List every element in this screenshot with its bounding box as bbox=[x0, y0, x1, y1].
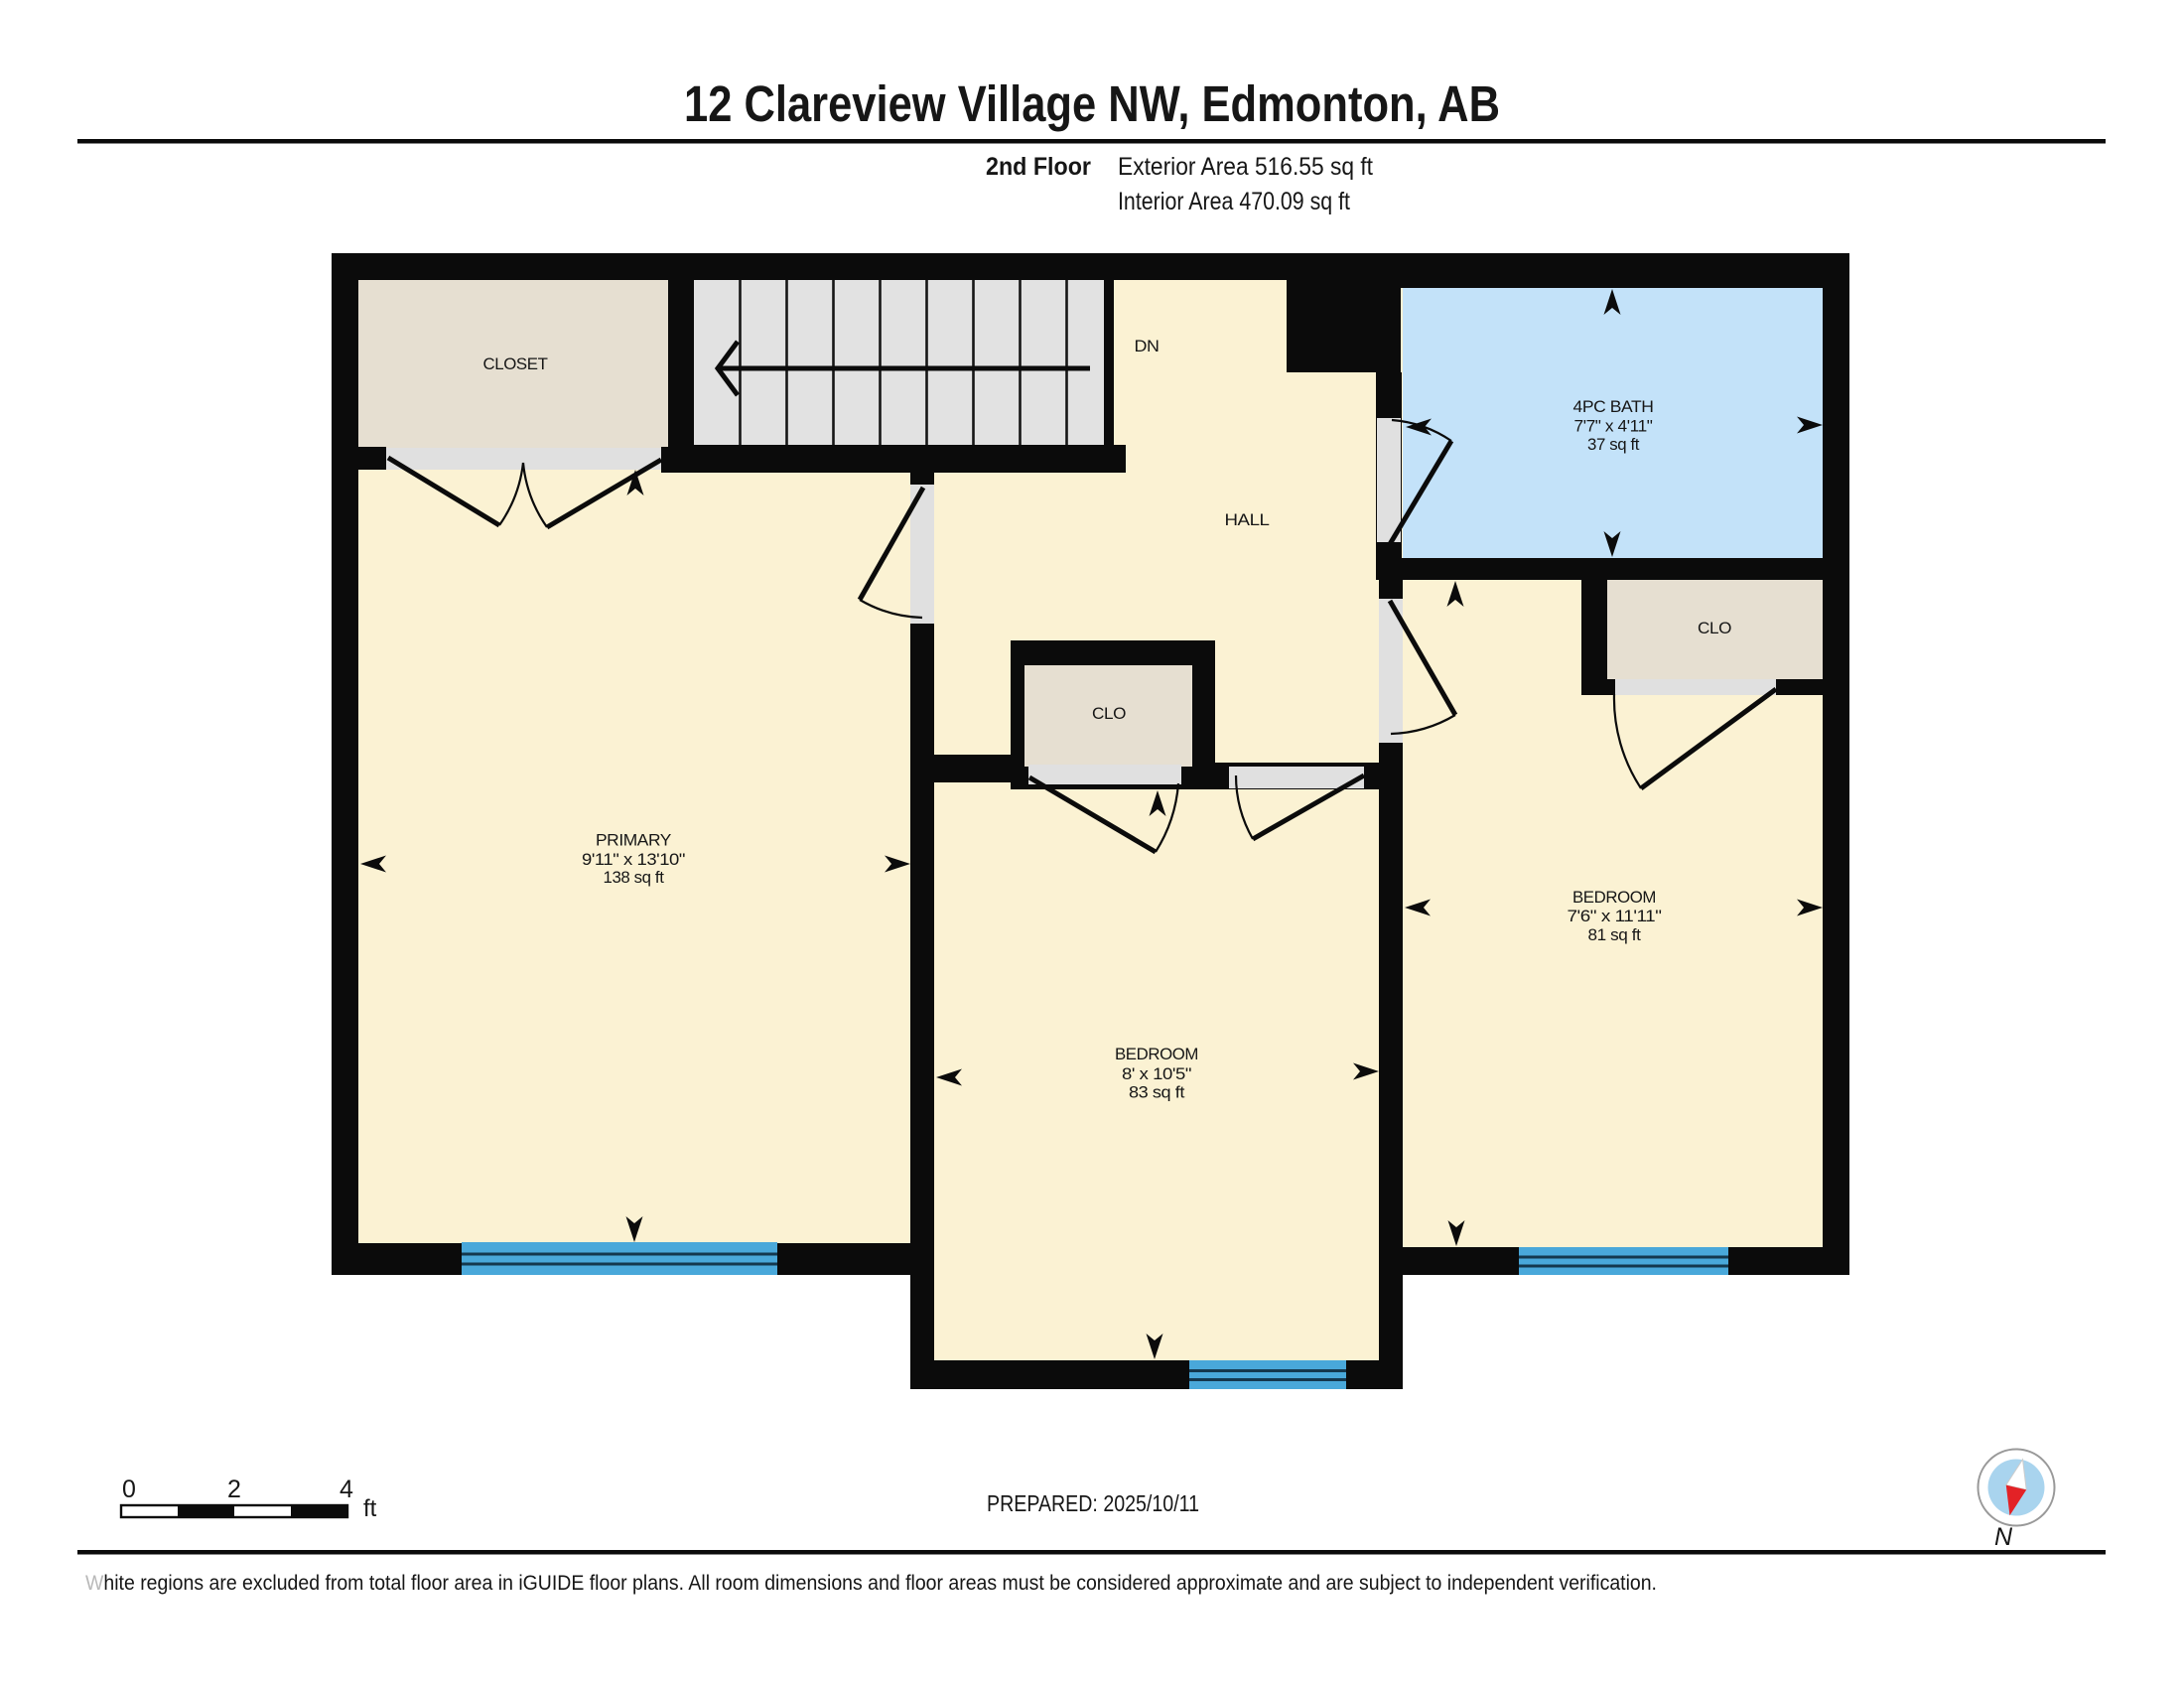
svg-text:Interior Area 470.09 sq ft: Interior Area 470.09 sq ft bbox=[1118, 188, 1350, 215]
svg-text:PREPARED: 2025/10/11: PREPARED: 2025/10/11 bbox=[987, 1490, 1199, 1516]
svg-text:CLO: CLO bbox=[1092, 704, 1126, 723]
svg-text:White regions are excluded fro: White regions are excluded from total fl… bbox=[85, 1571, 1657, 1595]
svg-text:4: 4 bbox=[340, 1476, 353, 1503]
svg-text:0: 0 bbox=[122, 1476, 136, 1503]
svg-text:2: 2 bbox=[227, 1476, 241, 1503]
svg-text:HALL: HALL bbox=[1225, 510, 1270, 529]
svg-text:8' x 10'5": 8' x 10'5" bbox=[1122, 1064, 1191, 1083]
svg-text:CLO: CLO bbox=[1698, 619, 1731, 637]
svg-text:138 sq ft: 138 sq ft bbox=[604, 868, 665, 887]
svg-text:7'6" x 11'11": 7'6" x 11'11" bbox=[1568, 907, 1662, 925]
svg-text:BEDROOM: BEDROOM bbox=[1115, 1045, 1198, 1063]
svg-text:N: N bbox=[1994, 1523, 2013, 1551]
svg-text:DN: DN bbox=[1135, 337, 1160, 355]
svg-text:83 sq ft: 83 sq ft bbox=[1129, 1083, 1185, 1102]
svg-text:12 Clareview Village NW, Edmon: 12 Clareview Village NW, Edmonton, AB bbox=[684, 75, 1500, 132]
svg-text:BEDROOM: BEDROOM bbox=[1572, 888, 1656, 907]
svg-text:7'7" x 4'11": 7'7" x 4'11" bbox=[1574, 417, 1653, 436]
svg-text:2nd Floor: 2nd Floor bbox=[986, 153, 1091, 181]
svg-text:CLOSET: CLOSET bbox=[483, 354, 548, 373]
svg-text:4PC BATH: 4PC BATH bbox=[1573, 397, 1654, 416]
svg-text:ft: ft bbox=[363, 1495, 377, 1522]
svg-text:9'11" x 13'10": 9'11" x 13'10" bbox=[582, 850, 685, 869]
svg-text:37 sq ft: 37 sq ft bbox=[1587, 435, 1640, 454]
svg-text:81 sq ft: 81 sq ft bbox=[1588, 925, 1642, 944]
svg-text:PRIMARY: PRIMARY bbox=[596, 831, 671, 850]
svg-text:Exterior Area 516.55 sq ft: Exterior Area 516.55 sq ft bbox=[1118, 153, 1373, 181]
